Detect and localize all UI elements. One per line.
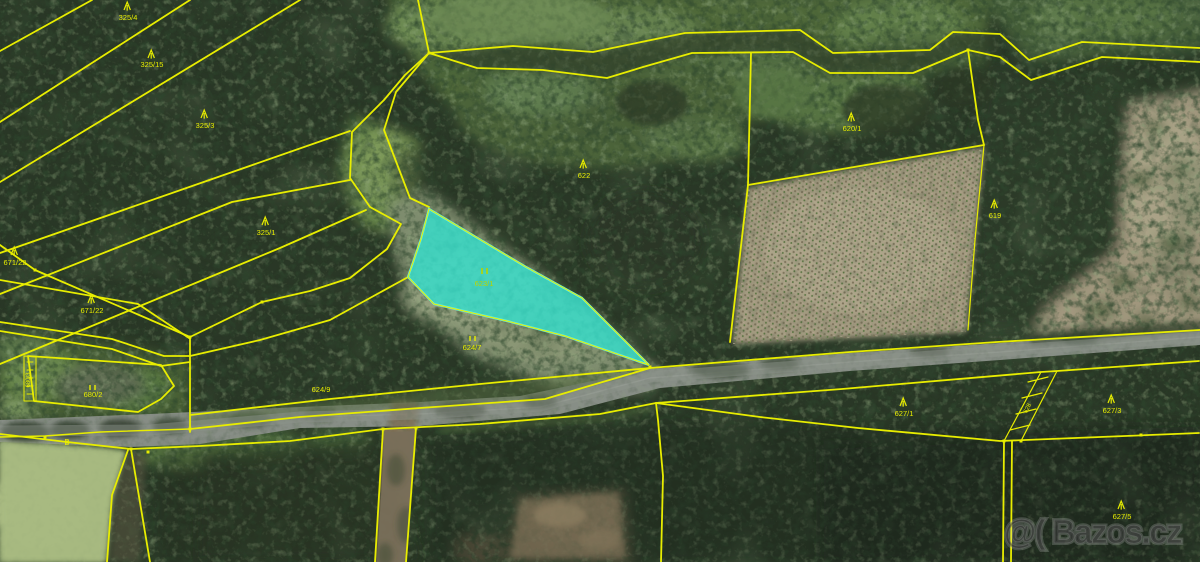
svg-text:619: 619 [989,211,1002,220]
svg-text:624/9: 624/9 [312,385,331,394]
svg-text:671/22: 671/22 [81,306,104,315]
svg-text:325/1: 325/1 [257,228,276,237]
svg-text:680/3: 680/3 [26,372,32,388]
svg-text:@( Bazos.cz: @( Bazos.cz [1004,513,1182,550]
svg-text:325/4: 325/4 [119,13,138,22]
svg-text:325/3: 325/3 [196,121,215,130]
svg-text:671/22: 671/22 [4,258,27,267]
svg-text:627/1: 627/1 [895,409,914,418]
svg-text:620/1: 620/1 [843,124,862,133]
svg-text:624/7: 624/7 [463,343,482,352]
svg-text:627/3: 627/3 [1103,406,1122,415]
svg-text:622: 622 [578,171,591,180]
svg-text:623/1: 623/1 [475,279,494,288]
svg-text:B: B [64,438,69,447]
svg-text:325/15: 325/15 [141,60,164,69]
svg-text:680/2: 680/2 [84,390,103,399]
